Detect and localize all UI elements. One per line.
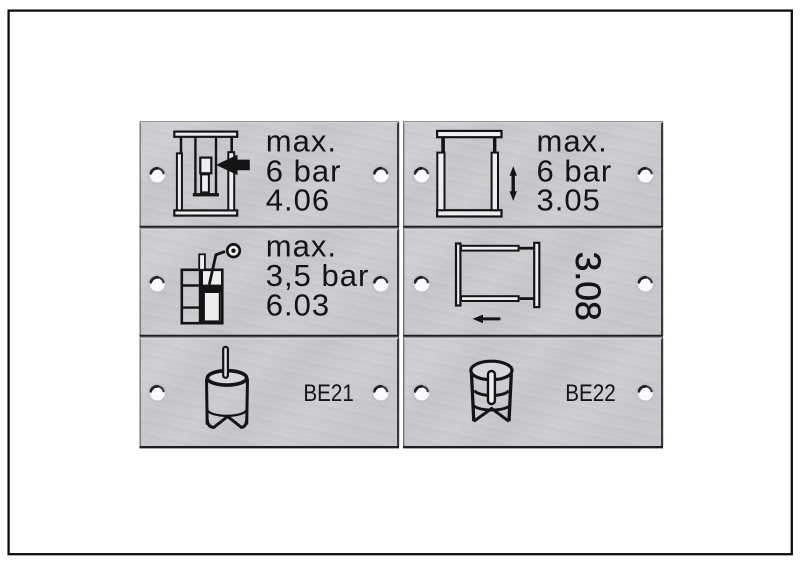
svg-text:3.05: 3.05	[537, 183, 601, 218]
svg-text:4.06: 4.06	[266, 183, 330, 218]
svg-text:6.03: 6.03	[266, 288, 330, 323]
svg-text:BE21: BE21	[303, 379, 353, 406]
svg-text:BE22: BE22	[565, 379, 615, 406]
svg-text:3.08: 3.08	[568, 252, 608, 321]
